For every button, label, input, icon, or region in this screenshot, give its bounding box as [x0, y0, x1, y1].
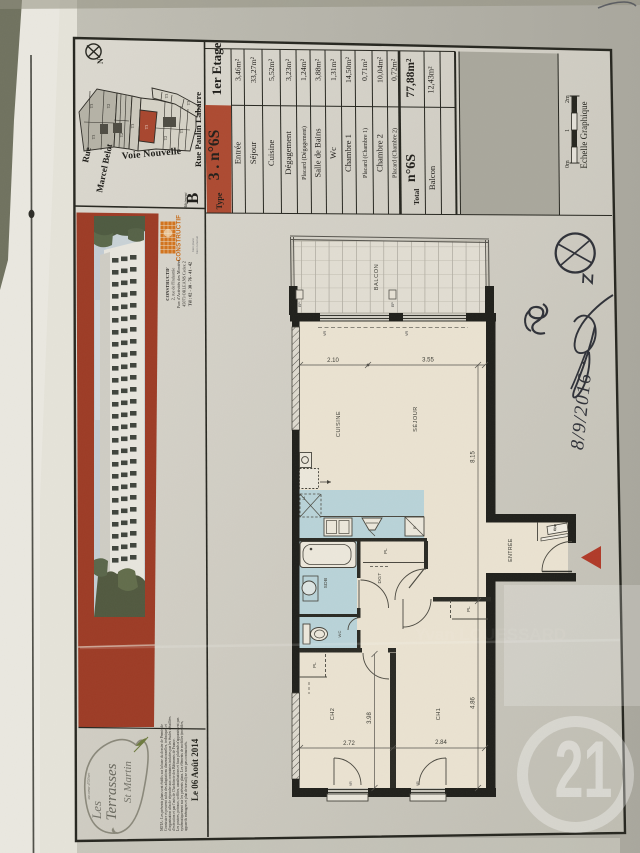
svg-text:Entrée: Entrée	[233, 142, 243, 165]
svg-text:T3: T3	[91, 135, 96, 139]
svg-text:T2: T2	[119, 133, 124, 137]
svg-text:1,24m²: 1,24m²	[299, 58, 308, 81]
svg-text:bien construit: bien construit	[195, 236, 199, 254]
svg-text:33,27m²: 33,27m²	[249, 56, 258, 83]
svg-text:SÉJOUR: SÉJOUR	[412, 406, 419, 432]
svg-text:au cœur d'Olivet: au cœur d'Olivet	[86, 772, 91, 800]
svg-text:R: R	[413, 526, 417, 529]
svg-text:Chambre 2: Chambre 2	[375, 134, 385, 172]
svg-text:2.84: 2.84	[435, 740, 447, 746]
svg-text:EP: EP	[391, 302, 395, 307]
svg-text:N: N	[96, 58, 105, 64]
svg-text:PL: PL	[312, 662, 317, 668]
svg-text:0,71m²: 0,71m²	[360, 58, 369, 81]
svg-text:Total: Total	[412, 189, 421, 205]
svg-text:Balcon: Balcon	[427, 165, 437, 190]
svg-text:3 . n°6S: 3 . n°6S	[206, 130, 223, 181]
svg-text:T3: T3	[164, 94, 169, 98]
svg-text:CONSTRUCTIF: CONSTRUCTIF	[165, 267, 170, 301]
svg-text:3,46m²: 3,46m²	[234, 58, 243, 81]
svg-text:PL: PL	[383, 548, 388, 554]
svg-text:2m: 2m	[565, 95, 571, 103]
svg-text:4.86: 4.86	[471, 697, 477, 709]
svg-text:CH1: CH1	[436, 708, 442, 720]
svg-text:3.98: 3.98	[367, 712, 373, 724]
svg-text:SDB: SDB	[323, 578, 329, 589]
svg-text:1er Etage: 1er Etage	[209, 42, 224, 95]
svg-text:3.55: 3.55	[422, 358, 434, 364]
svg-text:Placard (Dégagement): Placard (Dégagement)	[301, 126, 308, 180]
svg-text:St Martin: St Martin	[122, 761, 134, 803]
svg-text:T3: T3	[179, 129, 184, 133]
svg-text:BALCON: BALCON	[374, 264, 380, 291]
svg-text:T3: T3	[144, 125, 149, 129]
svg-text:14,50m²: 14,50m²	[344, 56, 353, 83]
svg-text:Le 06 Août 2014: Le 06 Août 2014	[190, 738, 200, 801]
svg-text:Placard (Chambre 1): Placard (Chambre 1)	[362, 128, 369, 178]
svg-text:Tél : 02 - 38 - 76 - 41 - 42: Tél : 02 - 38 - 76 - 41 - 42	[188, 262, 193, 306]
svg-text:Rue Paulin Labarre: Rue Paulin Labarre	[193, 92, 203, 167]
svg-text:0m: 0m	[565, 160, 571, 168]
svg-text:Echelle Graphique: Echelle Graphique	[579, 101, 589, 168]
svg-text:Dégagement: Dégagement	[283, 131, 293, 175]
svg-text:Parc d'Activités des Montées: Parc d'Activités des Montées	[176, 259, 181, 308]
svg-text:CONSTRUCTIF: CONSTRUCTIF	[176, 215, 183, 262]
svg-text:12,43m²: 12,43m²	[427, 66, 436, 94]
svg-text:EDF: EDF	[553, 524, 557, 531]
svg-text:77,88m²: 77,88m²	[405, 58, 417, 97]
svg-text:T2: T2	[106, 104, 111, 108]
svg-text:Type: Type	[215, 192, 224, 209]
svg-text:1,31m²: 1,31m²	[329, 58, 338, 81]
svg-text:1: 1	[565, 129, 571, 132]
svg-text:T3: T3	[89, 104, 94, 108]
svg-text:VR: VR	[349, 781, 353, 786]
svg-text:B: B	[183, 193, 202, 204]
svg-text:10,04m²: 10,04m²	[376, 56, 385, 83]
svg-text:3,88m²: 3,88m²	[314, 58, 323, 81]
svg-text:2.10: 2.10	[327, 358, 339, 364]
svg-text:EP: EP	[298, 302, 302, 307]
svg-text:8.15: 8.15	[471, 451, 477, 463]
svg-text:2.72: 2.72	[343, 741, 355, 747]
svg-text:0,72m²: 0,72m²	[390, 58, 399, 81]
svg-text:VR: VR	[323, 330, 327, 336]
svg-text:Chambre 1: Chambre 1	[343, 134, 353, 172]
svg-text:Placard (Chambre 2): Placard (Chambre 2)	[392, 128, 399, 178]
svg-text:5,52m²: 5,52m²	[267, 58, 276, 81]
svg-text:Wc: Wc	[328, 147, 338, 159]
svg-text:WC: WC	[337, 630, 342, 637]
svg-text:n°6S: n°6S	[404, 154, 419, 182]
svg-text:VR: VR	[405, 330, 409, 336]
svg-text:Terrasses: Terrasses	[104, 763, 120, 820]
svg-text:PL: PL	[466, 606, 471, 612]
svg-text:T3: T3	[130, 124, 135, 128]
svg-text:Cuisine: Cuisine	[266, 140, 276, 166]
svg-text:3,23m²: 3,23m²	[284, 58, 293, 81]
svg-text:21: 21	[555, 724, 613, 815]
svg-text:LL: LL	[302, 496, 306, 500]
svg-text:CH2: CH2	[330, 708, 336, 720]
svg-text:Séjour: Séjour	[248, 142, 258, 165]
svg-text:appareils ménagers et plan de: appareils ménagers et plan de travail) n…	[184, 741, 188, 831]
svg-text:T2: T2	[163, 136, 168, 140]
svg-text:CUISINE: CUISINE	[336, 411, 342, 437]
svg-text:45073 ORLEANS Cedex 2: 45073 ORLEANS Cedex 2	[182, 261, 187, 307]
svg-text:Salle de Bains: Salle de Bains	[313, 128, 323, 178]
svg-text:Les: Les	[89, 801, 104, 820]
svg-text:T3: T3	[186, 101, 191, 105]
svg-text:ENTRÉE: ENTRÉE	[507, 538, 514, 562]
svg-text:DGT: DGT	[377, 572, 383, 583]
